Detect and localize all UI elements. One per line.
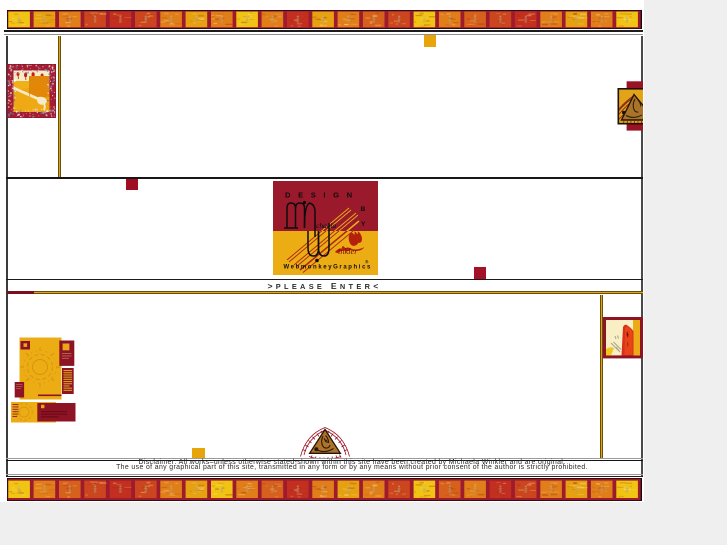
svg-text:ichaela: ichaela [314, 221, 336, 230]
svg-text:inkler: inkler [338, 247, 358, 256]
svg-text:Y: Y [361, 221, 366, 228]
svg-text:WebmonkeyGraphics: WebmonkeyGraphics [284, 265, 372, 271]
svg-text:DESIGN: DESIGN [285, 191, 360, 200]
svg-text:B: B [361, 206, 366, 213]
